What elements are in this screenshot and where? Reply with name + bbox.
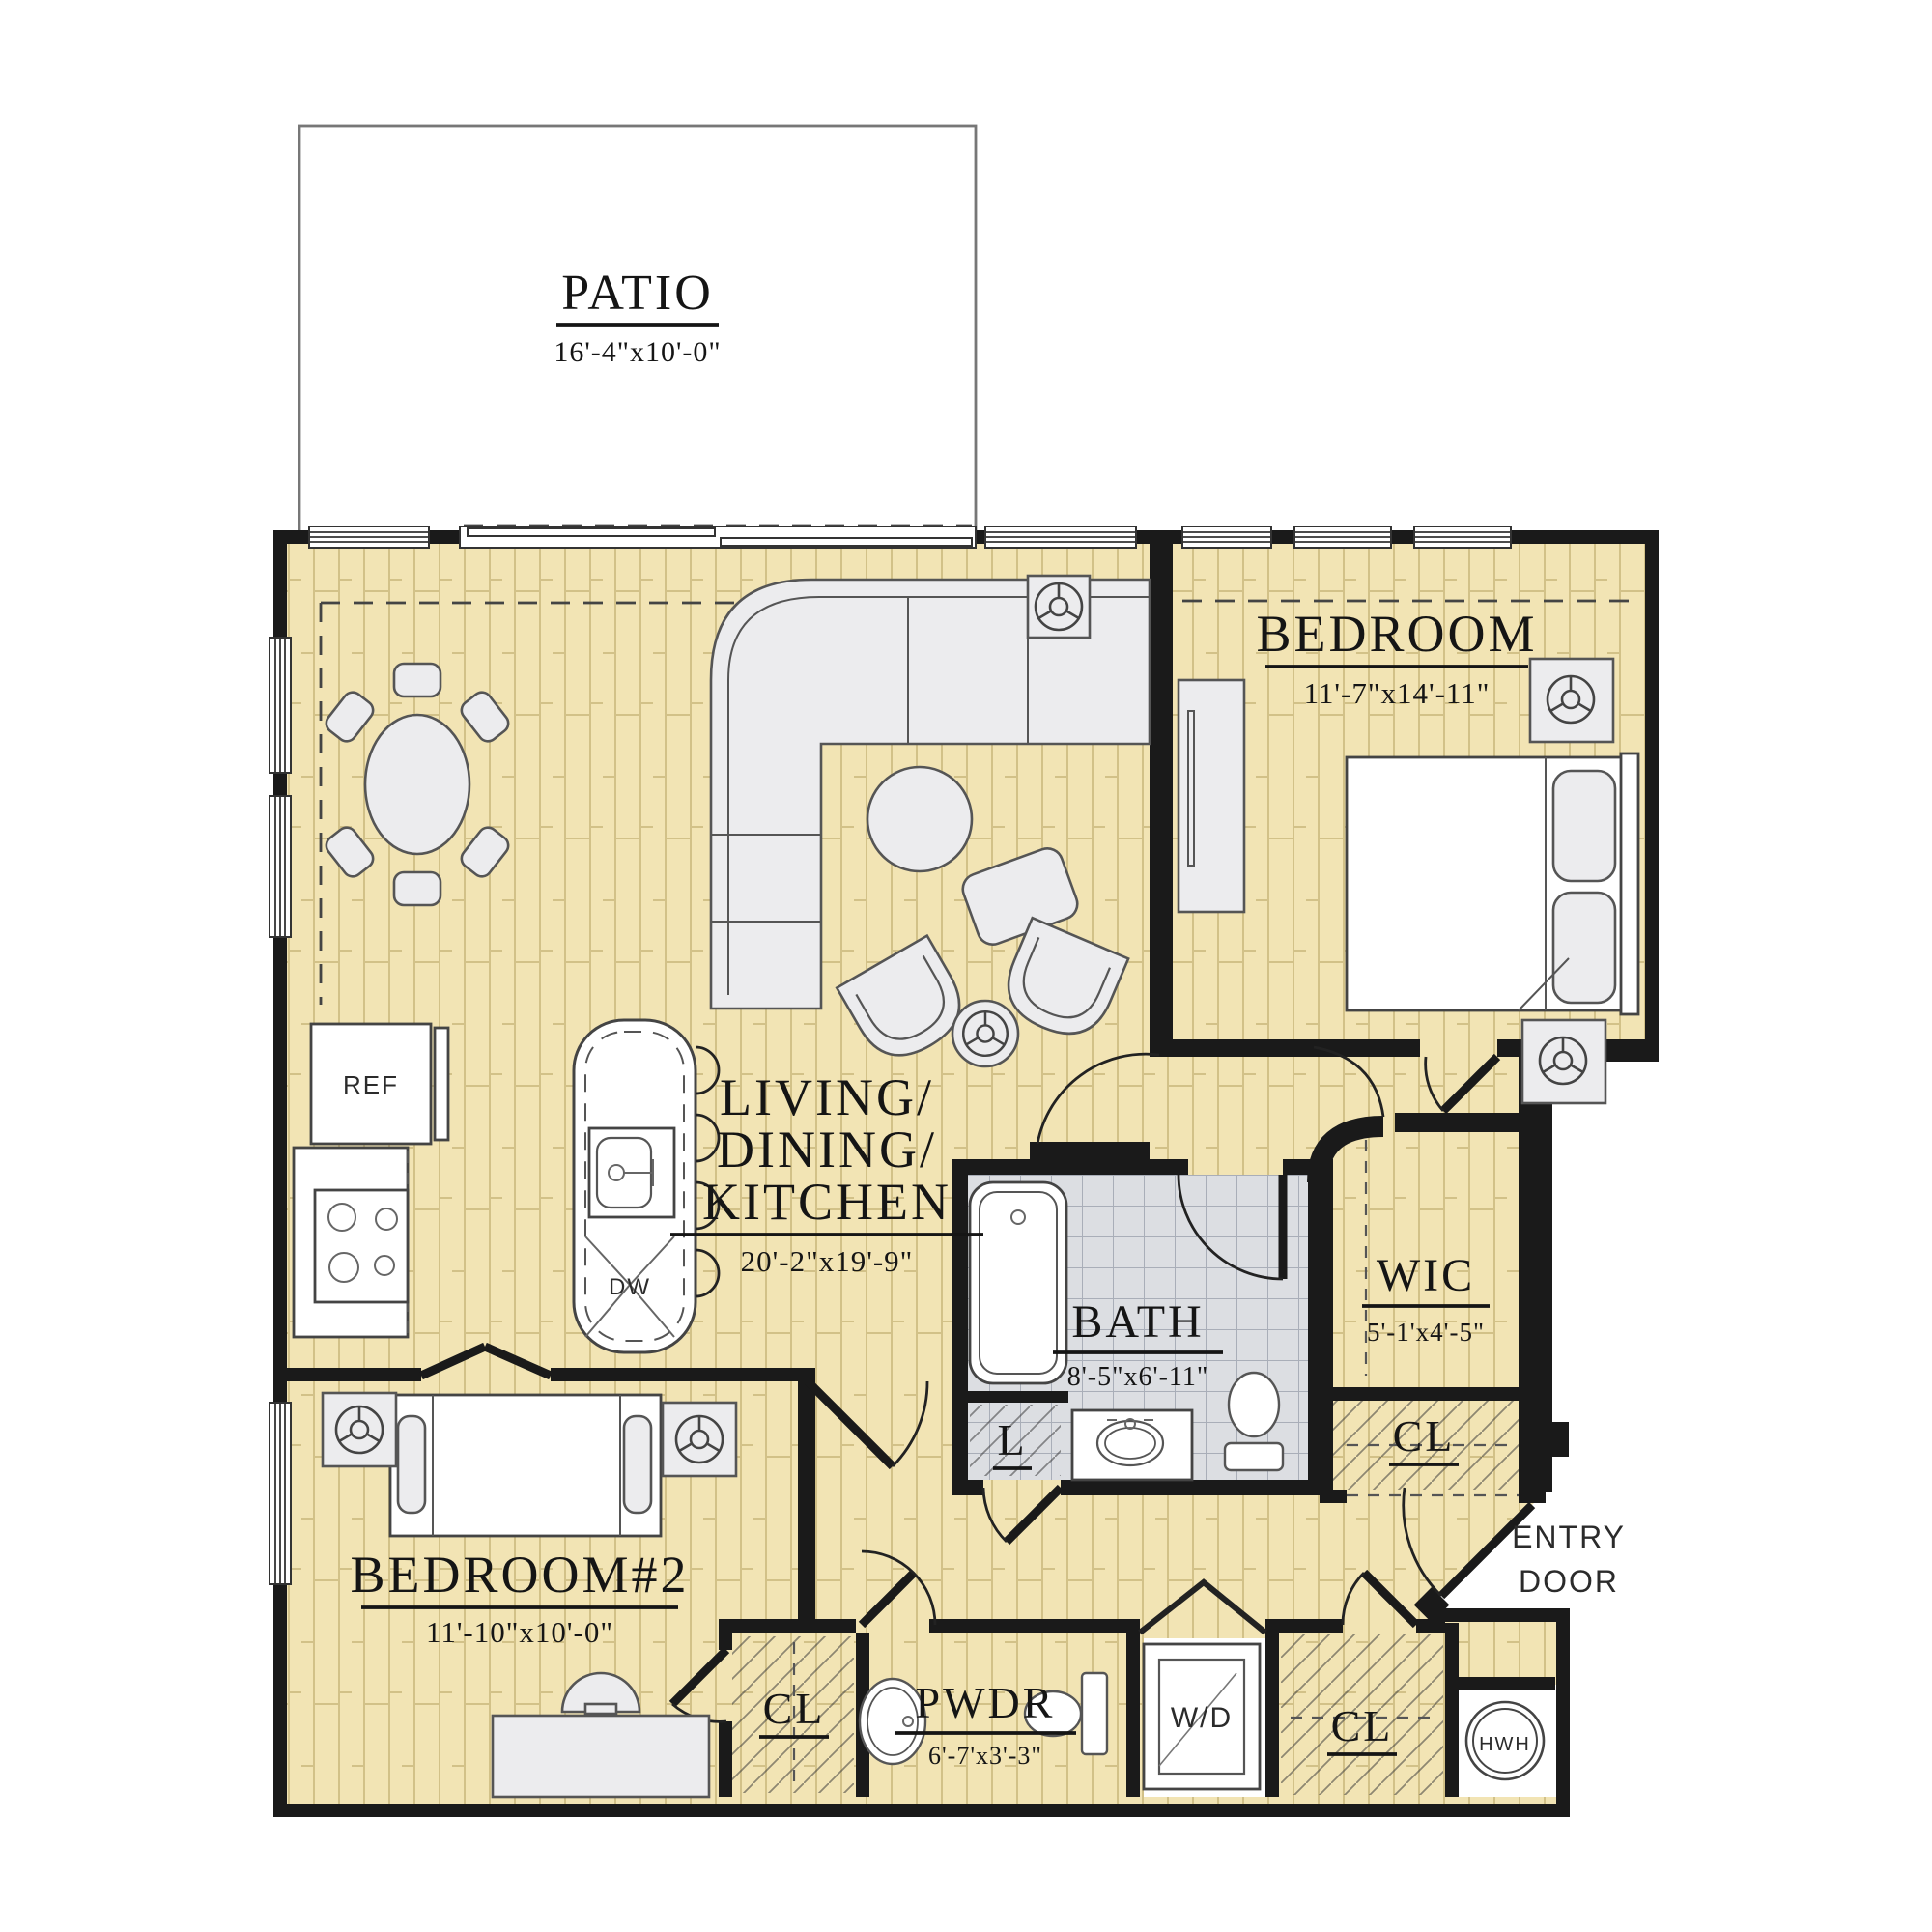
- bedroom2-label: BEDROOM#2: [350, 1546, 689, 1604]
- linen-closet-label: L: [997, 1415, 1027, 1464]
- hwh-label: HWH: [1479, 1734, 1531, 1755]
- bedroom2-bed: [390, 1395, 661, 1536]
- bedroom2-nightstand-right: [663, 1403, 736, 1476]
- bedroom-nightstand-top: [1530, 659, 1613, 742]
- side-table-lamp: [952, 1001, 1018, 1066]
- closet-bedroom2-label: CL: [763, 1684, 826, 1733]
- patio-dim: 16'-4"x10'-0": [554, 336, 721, 368]
- refrigerator-label: REF: [343, 1070, 399, 1099]
- living-label-line3: KITCHEN: [702, 1173, 952, 1231]
- bath-toilet: [1225, 1373, 1283, 1470]
- bath-dim: 8'-5"x6'-11": [1067, 1362, 1209, 1392]
- bedroom-dresser: [1179, 680, 1244, 912]
- wic-label: WIC: [1377, 1250, 1475, 1301]
- bedroom2-dim: 11'-10"x10'-0": [426, 1615, 613, 1649]
- bath-label: BATH: [1071, 1296, 1204, 1348]
- kitchen-island: [574, 1020, 696, 1352]
- floor-plan-page: PATIO 16'-4"x10'-0" BEDROOM 11'-7"x14'-1…: [0, 0, 1932, 1932]
- bedroom-nightstand-bottom: [1522, 1020, 1605, 1103]
- living-dim: 20'-2"x19'-9": [741, 1244, 914, 1278]
- closet-entry-label: CL: [1331, 1701, 1394, 1750]
- bedroom-dim: 11'-7"x14'-11": [1304, 676, 1491, 710]
- kitchen-sink: [589, 1128, 674, 1217]
- pwdr-label: PWDR: [916, 1678, 1056, 1727]
- entry-door-label-line1: ENTRY: [1512, 1520, 1626, 1554]
- corner-table-lamp: [1028, 576, 1090, 638]
- floor-plan-drawing: PATIO 16'-4"x10'-0" BEDROOM 11'-7"x14'-1…: [0, 0, 1932, 1932]
- pwdr-dim: 6'-7'x3'-3": [928, 1742, 1042, 1770]
- living-label-line2: DINING/: [717, 1121, 937, 1179]
- bath-vanity-sink: [1072, 1410, 1192, 1480]
- patio-area: [299, 126, 976, 543]
- living-label-line1: LIVING/: [720, 1068, 934, 1126]
- patio-label: PATIO: [561, 266, 714, 321]
- bedroom-label: BEDROOM: [1256, 605, 1537, 663]
- stove: [315, 1190, 408, 1302]
- patio-slider-door: [460, 526, 976, 548]
- washer-dryer-label: W/D: [1171, 1702, 1233, 1734]
- entry-door-label-line2: DOOR: [1519, 1564, 1619, 1599]
- bedroom2-nightstand-left: [323, 1393, 396, 1466]
- closet-hall-label: CL: [1393, 1411, 1456, 1461]
- dishwasher-label: DW: [609, 1274, 651, 1300]
- bathtub: [970, 1182, 1066, 1383]
- wic-dim: 5'-1'x4'-5": [1367, 1318, 1485, 1347]
- coffee-table: [867, 767, 972, 871]
- bedroom-bed: [1347, 753, 1638, 1014]
